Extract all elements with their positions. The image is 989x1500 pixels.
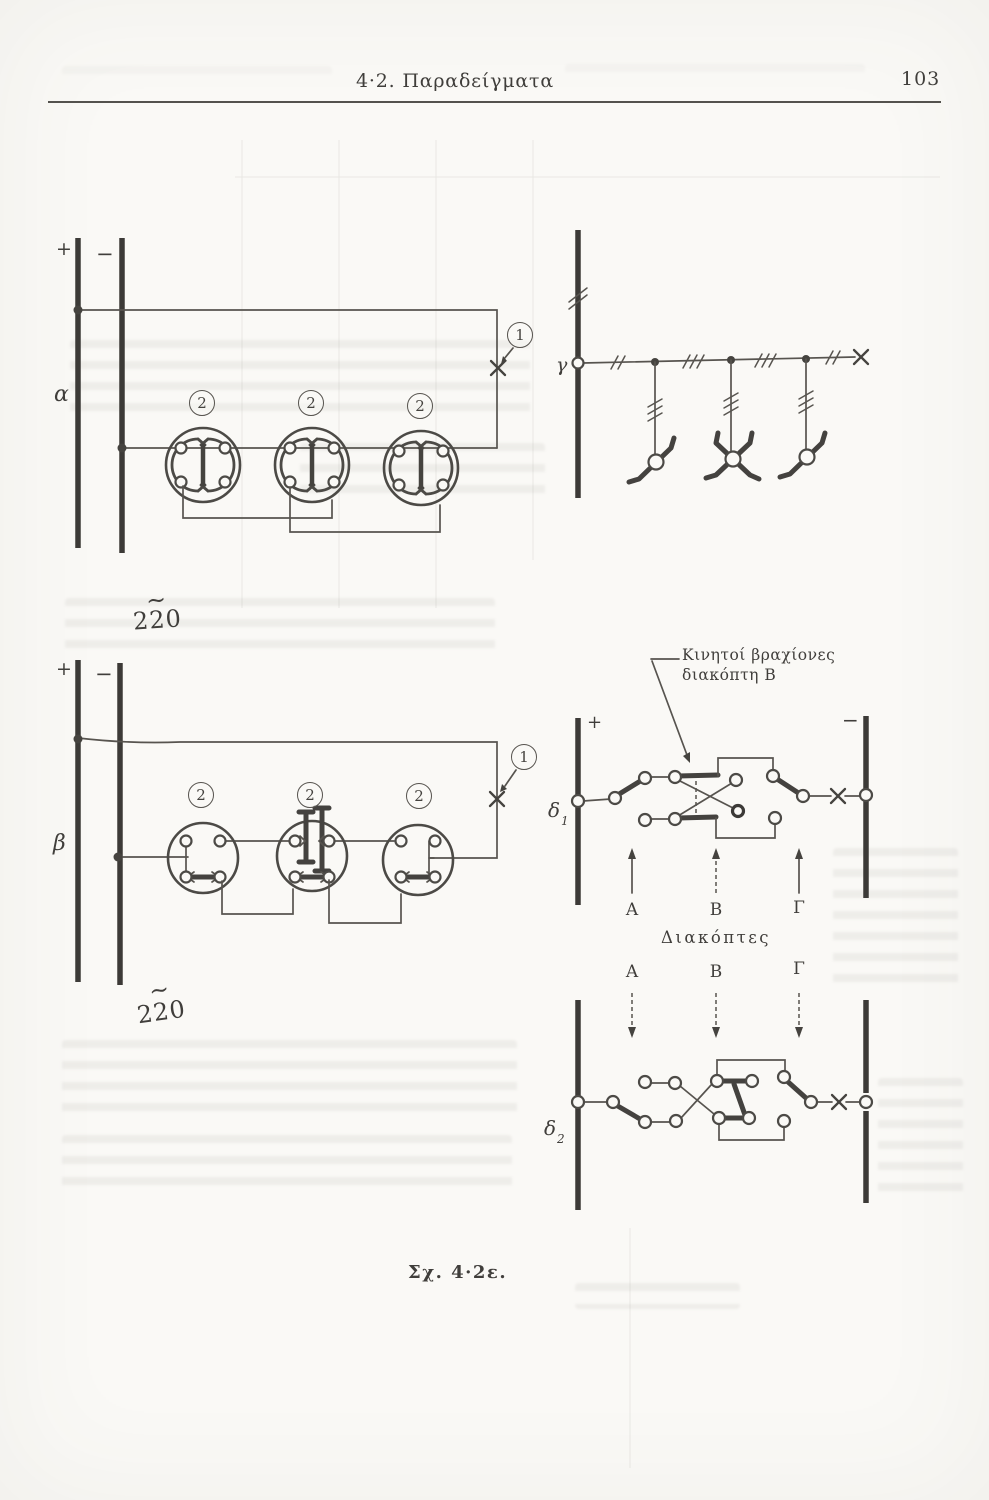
scanned-book-page: 4·2. Παραδείγματα 103: [0, 0, 989, 1500]
circuit-delta1-linework: [572, 659, 872, 905]
lampholder-symbol-duo: [277, 808, 347, 891]
switch-column-b: B: [710, 902, 723, 919]
supply-voltage-label: 220: [132, 606, 182, 633]
supply-voltage-label: 220: [136, 997, 188, 1028]
switches-title: Διακόπτες: [661, 930, 771, 947]
lamp-callout-badge: 2: [407, 393, 433, 419]
two-way-switch-icon: [780, 433, 825, 477]
switch-column-g: Γ: [793, 961, 805, 978]
switch-column-g: Γ: [793, 900, 805, 917]
two-way-switch-icon: [629, 438, 674, 482]
circuit-beta-label: β: [53, 833, 66, 855]
figure-caption: Σχ. 4·2ε.: [408, 1264, 507, 1282]
bus-plus-label: +: [587, 714, 602, 732]
bus-plus-label: +: [56, 240, 72, 259]
graph-grid-lines: [235, 140, 940, 1468]
lamp-callout-badge: 2: [406, 783, 432, 809]
circuit-alpha-label: α: [54, 384, 69, 406]
circuit-gamma-linework: [569, 230, 868, 498]
circuit-alpha-linework: [74, 238, 514, 553]
switch-callout-badge: 1: [511, 744, 537, 770]
bus-plus-label: +: [56, 660, 72, 679]
switch-column-a: A: [626, 902, 638, 919]
lamp-callout-badge: 2: [297, 782, 323, 808]
bus-minus-label: −: [95, 664, 113, 685]
lamp-callout-badge: 2: [189, 390, 215, 416]
lamp-callout-badge: 2: [188, 782, 214, 808]
annotation-line1: Κινητοί βραχίονες: [682, 648, 835, 664]
lampholder-symbol: [168, 823, 238, 893]
bus-minus-label: −: [96, 244, 114, 265]
annotation-line2: διακόπτη Β: [682, 668, 776, 684]
cross-switch-icon: [706, 433, 759, 479]
lampholder-symbol: [383, 825, 453, 895]
switch-column-a: A: [626, 964, 638, 981]
circuit-delta2-linework: [572, 1000, 872, 1210]
delta2-label: δ2: [544, 1118, 564, 1142]
delta1-label: δ1: [548, 800, 568, 824]
switch-callout-badge: 1: [507, 322, 533, 348]
switch-column-b: B: [710, 964, 723, 981]
bus-minus-label: −: [842, 710, 859, 730]
circuit-gamma-label: γ: [556, 356, 567, 375]
lamp-callout-badge: 2: [298, 390, 324, 416]
circuit-beta-linework: [74, 660, 517, 985]
